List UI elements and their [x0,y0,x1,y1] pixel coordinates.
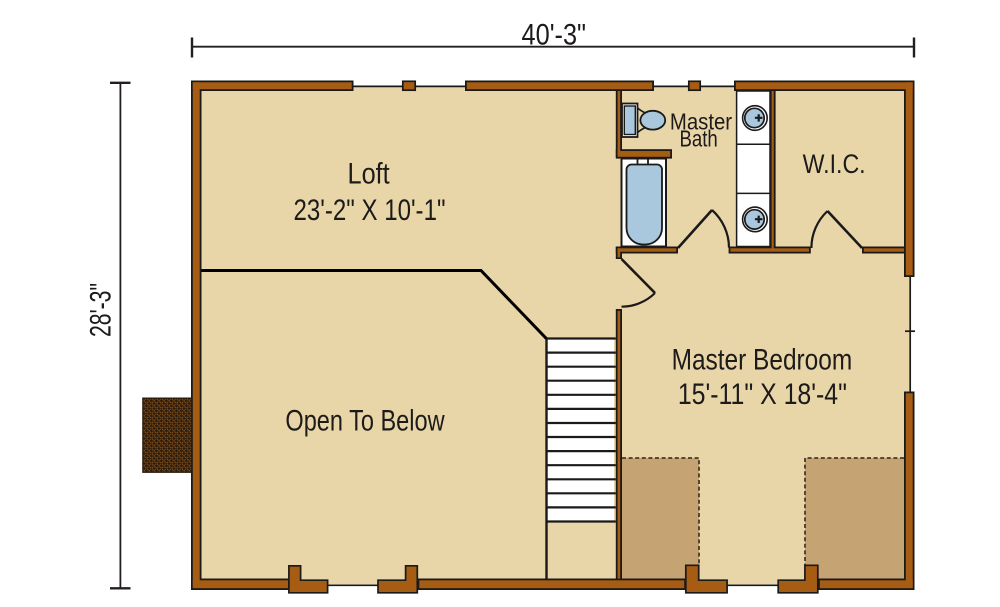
svg-text:Bath: Bath [679,126,717,152]
svg-text:Loft: Loft [348,157,391,190]
svg-text:Open To Below: Open To Below [285,405,444,438]
svg-text:23'-2" X 10'-1": 23'-2" X 10'-1" [294,194,446,227]
svg-text:15'-11" X 18'-4": 15'-11" X 18'-4" [678,378,847,411]
svg-text:Master Bedroom: Master Bedroom [672,344,853,377]
svg-text:28'-3": 28'-3" [85,283,118,337]
svg-text:40'-3": 40'-3" [522,19,587,52]
svg-text:W.I.C.: W.I.C. [803,149,866,179]
